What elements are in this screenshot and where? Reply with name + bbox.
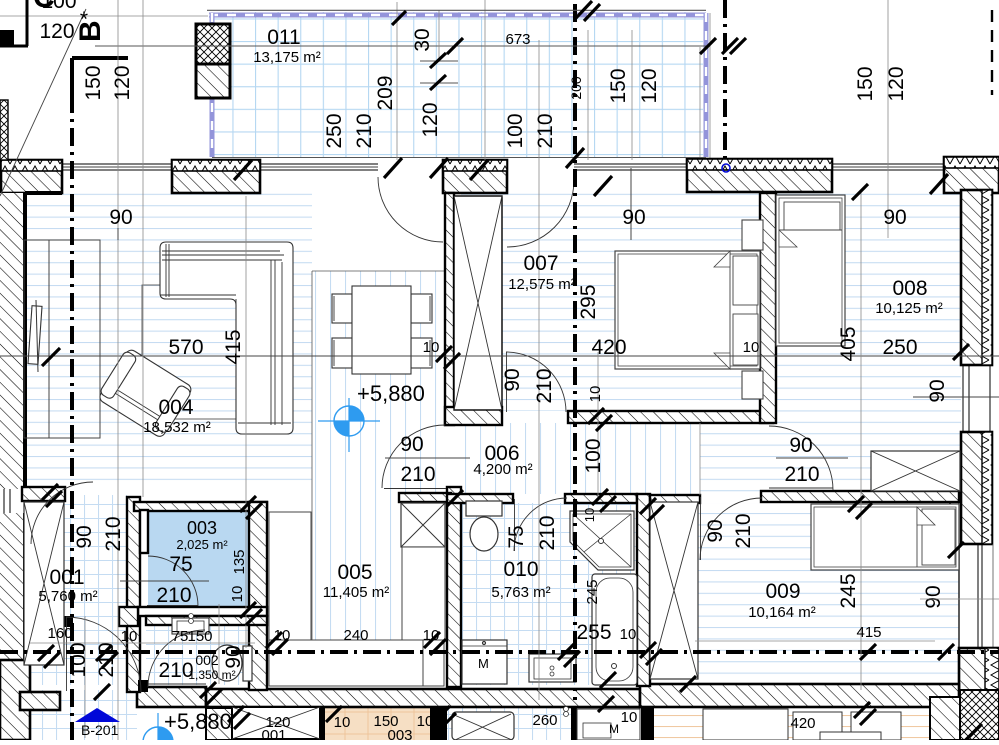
svg-text:10: 10 — [423, 339, 440, 356]
svg-text:10: 10 — [587, 386, 604, 403]
svg-text:210: 210 — [102, 516, 125, 551]
svg-text:008: 008 — [892, 277, 927, 300]
svg-text:210: 210 — [533, 368, 556, 403]
svg-text:295: 295 — [577, 284, 600, 319]
svg-text:160: 160 — [47, 625, 72, 642]
svg-text:90: 90 — [922, 585, 945, 608]
svg-text:10: 10 — [582, 508, 597, 522]
svg-text:210: 210 — [353, 113, 376, 148]
svg-text:135: 135 — [231, 549, 248, 574]
svg-text:10: 10 — [423, 627, 440, 644]
svg-text:5,760 m²: 5,760 m² — [38, 588, 97, 605]
svg-text:005: 005 — [337, 561, 372, 584]
svg-text:+5,880: +5,880 — [357, 381, 425, 406]
svg-text:C: C — [33, 0, 55, 14]
svg-text:4,200 m²: 4,200 m² — [473, 461, 532, 478]
svg-text:420: 420 — [591, 336, 626, 359]
svg-text:75: 75 — [505, 525, 528, 548]
svg-text:420: 420 — [790, 715, 815, 732]
svg-text:75: 75 — [172, 628, 189, 645]
svg-text:007: 007 — [523, 252, 558, 275]
svg-text:10: 10 — [334, 714, 351, 731]
svg-text:100: 100 — [582, 438, 605, 473]
svg-text:12,575 m²: 12,575 m² — [508, 276, 576, 293]
svg-text:150: 150 — [854, 66, 877, 101]
svg-text:003: 003 — [387, 727, 412, 740]
svg-text:001: 001 — [49, 566, 84, 589]
svg-text:13,175 m²: 13,175 m² — [253, 49, 321, 66]
svg-text:B-201: B-201 — [81, 722, 119, 738]
svg-text:2,025 m²: 2,025 m² — [176, 537, 228, 552]
svg-text:210: 210 — [536, 515, 559, 550]
svg-text:5,763 m²: 5,763 m² — [491, 584, 550, 601]
svg-text:120: 120 — [638, 68, 661, 103]
svg-text:90: 90 — [222, 645, 245, 668]
svg-text:001: 001 — [261, 727, 286, 740]
svg-text:011: 011 — [267, 26, 300, 49]
svg-text:90: 90 — [109, 206, 132, 229]
svg-text:004: 004 — [158, 396, 193, 419]
svg-text:210: 210 — [95, 642, 118, 677]
svg-text:+5,880: +5,880 — [164, 709, 232, 734]
svg-text:245: 245 — [837, 573, 860, 608]
svg-text:255: 255 — [576, 621, 611, 644]
svg-text:240: 240 — [343, 627, 368, 644]
svg-text:120: 120 — [39, 20, 74, 43]
svg-text:10: 10 — [121, 628, 138, 645]
svg-text:90: 90 — [883, 206, 906, 229]
svg-text:405: 405 — [837, 326, 860, 361]
svg-text:210: 210 — [732, 513, 755, 548]
svg-text:B: B — [74, 20, 107, 42]
svg-text:150: 150 — [187, 628, 212, 645]
svg-text:10: 10 — [274, 627, 291, 644]
svg-text:90: 90 — [704, 519, 727, 542]
svg-text:10,125 m²: 10,125 m² — [875, 300, 943, 317]
svg-text:90: 90 — [73, 525, 96, 548]
svg-text:210: 210 — [156, 584, 191, 607]
svg-text:1,350 m²: 1,350 m² — [188, 668, 235, 682]
svg-text:250: 250 — [323, 113, 346, 148]
svg-text:003: 003 — [187, 518, 217, 538]
svg-text:M: M — [478, 656, 489, 671]
svg-text:100: 100 — [67, 642, 90, 677]
svg-text:210: 210 — [534, 113, 557, 148]
svg-text:009: 009 — [765, 580, 800, 603]
svg-text:260: 260 — [532, 712, 557, 729]
svg-text:210: 210 — [400, 463, 435, 486]
svg-text:10: 10 — [620, 626, 637, 643]
svg-text:150: 150 — [82, 65, 105, 100]
svg-text:200: 200 — [568, 76, 584, 100]
svg-text:11,405 m²: 11,405 m² — [323, 584, 389, 601]
svg-text:90: 90 — [501, 368, 524, 391]
svg-text:570: 570 — [168, 336, 203, 359]
svg-text:002: 002 — [195, 652, 219, 668]
svg-text:415: 415 — [856, 624, 881, 641]
svg-text:010: 010 — [503, 558, 538, 581]
svg-text:90: 90 — [400, 433, 423, 456]
svg-text:120: 120 — [419, 102, 442, 137]
svg-text:210: 210 — [784, 463, 819, 486]
svg-text:209: 209 — [374, 75, 397, 110]
svg-text:250: 250 — [882, 336, 917, 359]
svg-text:10: 10 — [743, 339, 760, 356]
svg-text:M: M — [609, 722, 619, 736]
svg-text:18,532 m²: 18,532 m² — [143, 419, 211, 436]
svg-text:120: 120 — [111, 65, 134, 100]
svg-text:245: 245 — [584, 579, 601, 604]
svg-text:10,164 m²: 10,164 m² — [748, 604, 816, 621]
svg-text:75: 75 — [169, 553, 192, 576]
svg-text:90: 90 — [926, 379, 949, 402]
svg-text:415: 415 — [222, 329, 245, 364]
svg-text:30: 30 — [411, 28, 434, 51]
svg-text:10: 10 — [229, 586, 246, 603]
svg-text:90: 90 — [789, 434, 812, 457]
svg-text:100: 100 — [504, 113, 527, 148]
svg-text:150: 150 — [607, 68, 630, 103]
svg-text:10: 10 — [621, 709, 638, 726]
svg-text:90: 90 — [622, 206, 645, 229]
svg-text:120: 120 — [885, 66, 908, 101]
svg-text:10: 10 — [417, 713, 434, 730]
svg-text:673: 673 — [505, 31, 530, 48]
